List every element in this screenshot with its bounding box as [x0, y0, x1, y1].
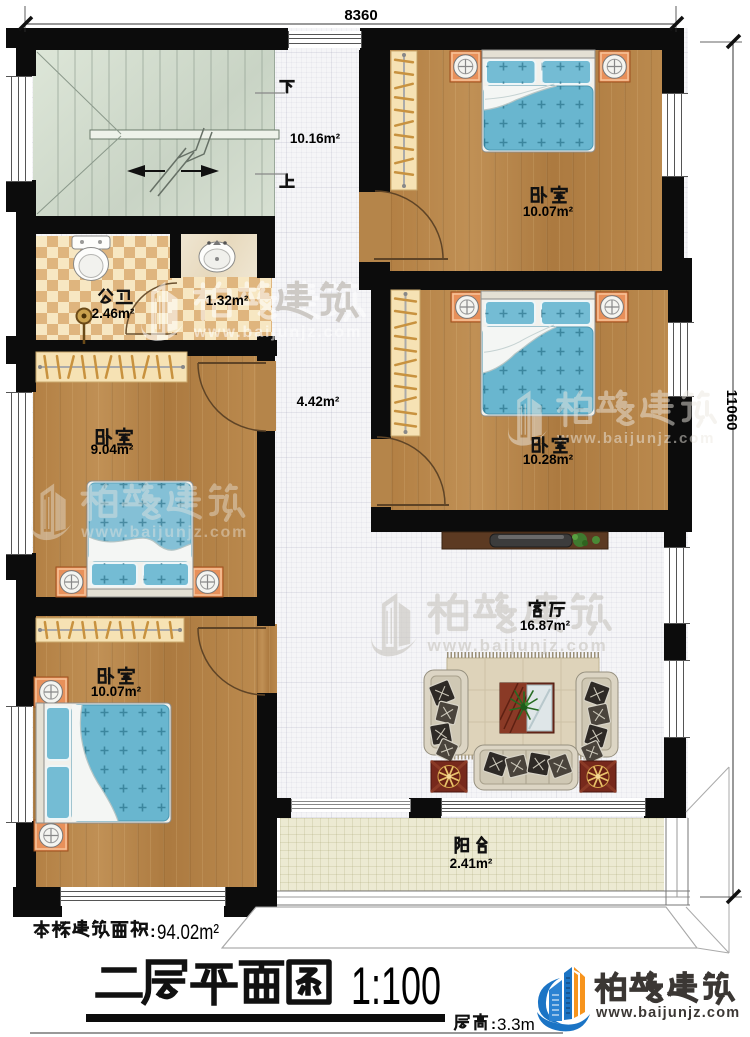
svg-text::: : — [150, 922, 156, 941]
svg-text:10.16m²: 10.16m² — [290, 131, 341, 146]
svg-text:www.baijunjz.com: www.baijunjz.com — [556, 430, 715, 447]
svg-text:2.41m²: 2.41m² — [450, 856, 493, 871]
svg-text:www.baijunjz.com: www.baijunjz.com — [193, 324, 363, 341]
svg-text:www.baijunjz.com: www.baijunjz.com — [427, 636, 608, 655]
svg-text:1.32m²: 1.32m² — [206, 293, 249, 308]
svg-text:1:100: 1:100 — [351, 957, 441, 1016]
svg-text:3.3m: 3.3m — [497, 1015, 535, 1034]
svg-text:10.28m²: 10.28m² — [523, 452, 574, 467]
svg-text:10.07m²: 10.07m² — [91, 684, 142, 699]
svg-text:4.42m²: 4.42m² — [297, 394, 340, 409]
svg-text:16.87m²: 16.87m² — [520, 618, 571, 633]
svg-text:www.baijunjz.com: www.baijunjz.com — [595, 1005, 740, 1021]
svg-text:9.04m²: 9.04m² — [91, 442, 134, 457]
svg-text:www.baijunjz.com: www.baijunjz.com — [80, 524, 248, 541]
svg-text:8360: 8360 — [344, 7, 377, 24]
svg-text:2.46m²: 2.46m² — [92, 306, 135, 321]
svg-text:11060: 11060 — [723, 390, 740, 431]
svg-text:94.02m²: 94.02m² — [157, 921, 219, 944]
svg-text::: : — [491, 1016, 496, 1033]
svg-text:10.07m²: 10.07m² — [523, 204, 574, 219]
